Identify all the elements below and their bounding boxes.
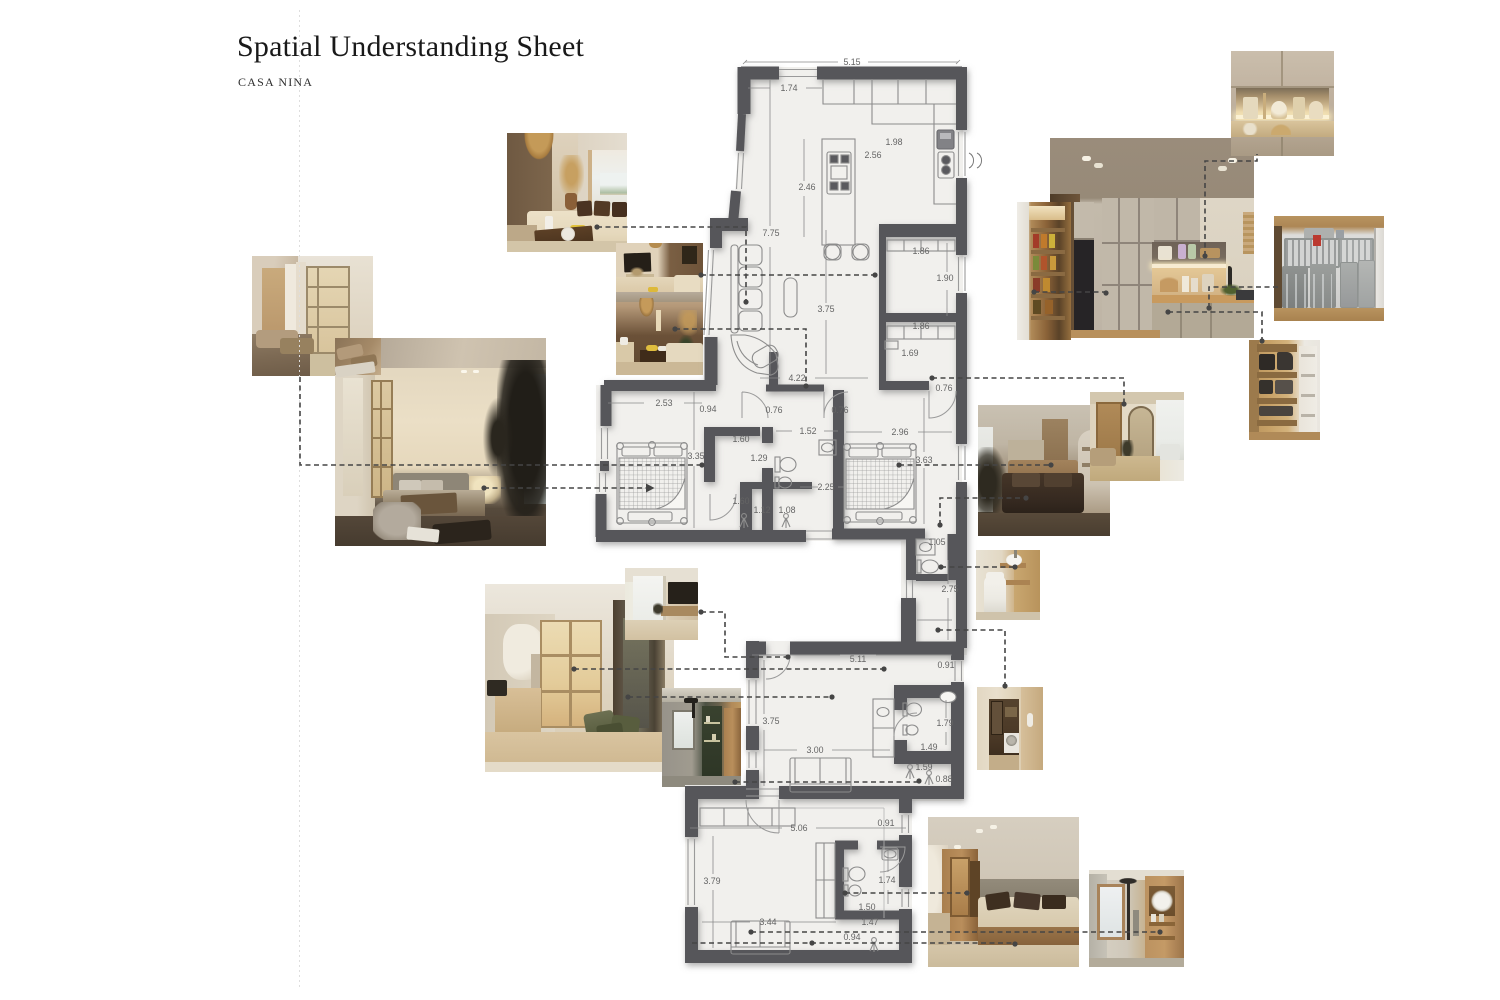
svg-text:2.53: 2.53: [655, 398, 672, 408]
svg-text:1.69: 1.69: [901, 348, 918, 358]
svg-text:0.76: 0.76: [765, 405, 782, 415]
svg-text:0.88: 0.88: [935, 774, 952, 784]
svg-text:0.94: 0.94: [843, 932, 860, 942]
svg-text:1.47: 1.47: [861, 917, 878, 927]
svg-text:1.98: 1.98: [885, 137, 902, 147]
svg-text:1.29: 1.29: [750, 453, 767, 463]
svg-text:1.74: 1.74: [878, 875, 895, 885]
svg-text:2.56: 2.56: [864, 150, 881, 160]
svg-text:2.96: 2.96: [891, 427, 908, 437]
svg-text:0.94: 0.94: [699, 404, 716, 414]
svg-text:5.15: 5.15: [843, 57, 860, 67]
svg-text:4.22: 4.22: [788, 373, 805, 383]
svg-text:1.74: 1.74: [780, 83, 797, 93]
svg-text:3.44: 3.44: [759, 917, 776, 927]
svg-text:3.75: 3.75: [817, 304, 834, 314]
svg-text:1.86: 1.86: [912, 246, 929, 256]
svg-text:5.11: 5.11: [850, 654, 867, 664]
svg-text:5.06: 5.06: [790, 823, 807, 833]
svg-text:3.79: 3.79: [703, 876, 720, 886]
svg-text:2.75: 2.75: [941, 584, 958, 594]
svg-text:3.00: 3.00: [806, 745, 823, 755]
svg-text:1.90: 1.90: [936, 273, 953, 283]
svg-text:1.12: 1.12: [753, 505, 770, 515]
svg-text:0.91: 0.91: [937, 660, 954, 670]
svg-text:1.59: 1.59: [915, 762, 932, 772]
svg-text:1.79: 1.79: [936, 718, 953, 728]
svg-text:2.25: 2.25: [817, 482, 834, 492]
svg-text:3.35: 3.35: [687, 451, 704, 461]
svg-text:1.50: 1.50: [858, 902, 875, 912]
svg-text:1.60: 1.60: [732, 496, 749, 506]
svg-text:0.91: 0.91: [877, 818, 894, 828]
svg-text:3.75: 3.75: [762, 716, 779, 726]
svg-text:1.86: 1.86: [912, 321, 929, 331]
svg-text:2.46: 2.46: [798, 182, 815, 192]
svg-text:0.76: 0.76: [831, 405, 848, 415]
svg-text:1.05: 1.05: [928, 537, 945, 547]
svg-text:1.60: 1.60: [732, 434, 749, 444]
svg-text:0.76: 0.76: [935, 383, 952, 393]
svg-text:3.63: 3.63: [915, 455, 932, 465]
svg-text:1.08: 1.08: [778, 505, 795, 515]
svg-text:7.75: 7.75: [762, 228, 779, 238]
svg-text:1.49: 1.49: [920, 742, 937, 752]
svg-text:1.52: 1.52: [799, 426, 816, 436]
